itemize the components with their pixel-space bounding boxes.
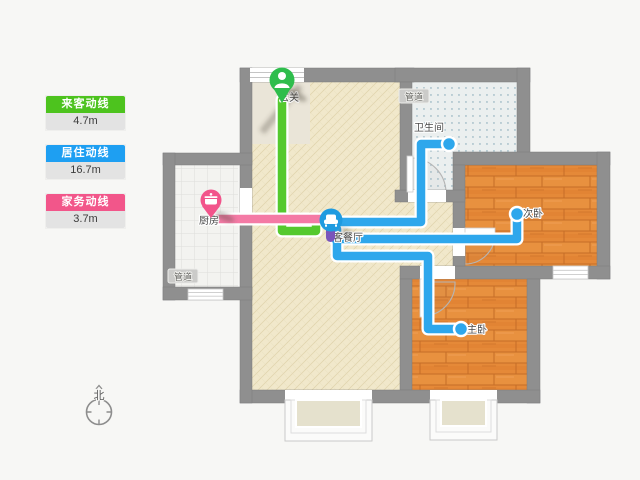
wall-segment bbox=[163, 153, 252, 165]
kitchen-window bbox=[188, 289, 223, 300]
floorplan-app: 管道 管道 bbox=[0, 0, 640, 480]
wall-segment bbox=[527, 279, 540, 403]
legend-item-guest[interactable]: 来客动线 4.7m bbox=[46, 96, 125, 130]
wall-segment bbox=[400, 279, 412, 390]
label-second-bedroom: 次卧 bbox=[523, 207, 543, 220]
wall-segment bbox=[597, 152, 610, 279]
label-bathroom: 卫生间 bbox=[414, 121, 444, 134]
wall-segment bbox=[517, 68, 530, 165]
pipe-tag-top-label: 管道 bbox=[405, 91, 423, 102]
legend-chores-label[interactable]: 家务动线 bbox=[46, 194, 125, 211]
master-bay-window bbox=[430, 400, 497, 440]
legend-guest-value: 4.7m bbox=[46, 113, 125, 130]
legend-guest-label[interactable]: 来客动线 bbox=[46, 96, 125, 113]
wall-segment bbox=[453, 152, 610, 165]
legend-living-label[interactable]: 居住动线 bbox=[46, 145, 125, 162]
wall-segment bbox=[395, 68, 530, 82]
bathroom-door-leaf bbox=[407, 156, 413, 192]
kitchen-door-opening bbox=[240, 188, 252, 214]
legend-chores-value: 3.7m bbox=[46, 211, 125, 228]
route-endpoint-bathroom bbox=[442, 137, 456, 151]
route-legend: 来客动线 4.7m 居住动线 16.7m 家务动线 3.7m bbox=[46, 96, 125, 243]
second-bedroom-window bbox=[553, 266, 588, 279]
label-kitchen: 厨房 bbox=[199, 214, 219, 227]
wall-segment bbox=[240, 68, 252, 403]
legend-item-chores[interactable]: 家务动线 3.7m bbox=[46, 194, 125, 228]
legend-living-value: 16.7m bbox=[46, 162, 125, 179]
north-label: 北 bbox=[94, 389, 105, 402]
route-endpoint-master-bedroom bbox=[454, 322, 468, 336]
route-endpoint-second-bedroom bbox=[510, 207, 524, 221]
legend-item-living[interactable]: 居住动线 16.7m bbox=[46, 145, 125, 179]
label-master-bedroom: 主卧 bbox=[467, 323, 487, 336]
pipe-tag-kitchen-label: 管道 bbox=[174, 271, 192, 282]
living-bay-window bbox=[285, 400, 372, 441]
